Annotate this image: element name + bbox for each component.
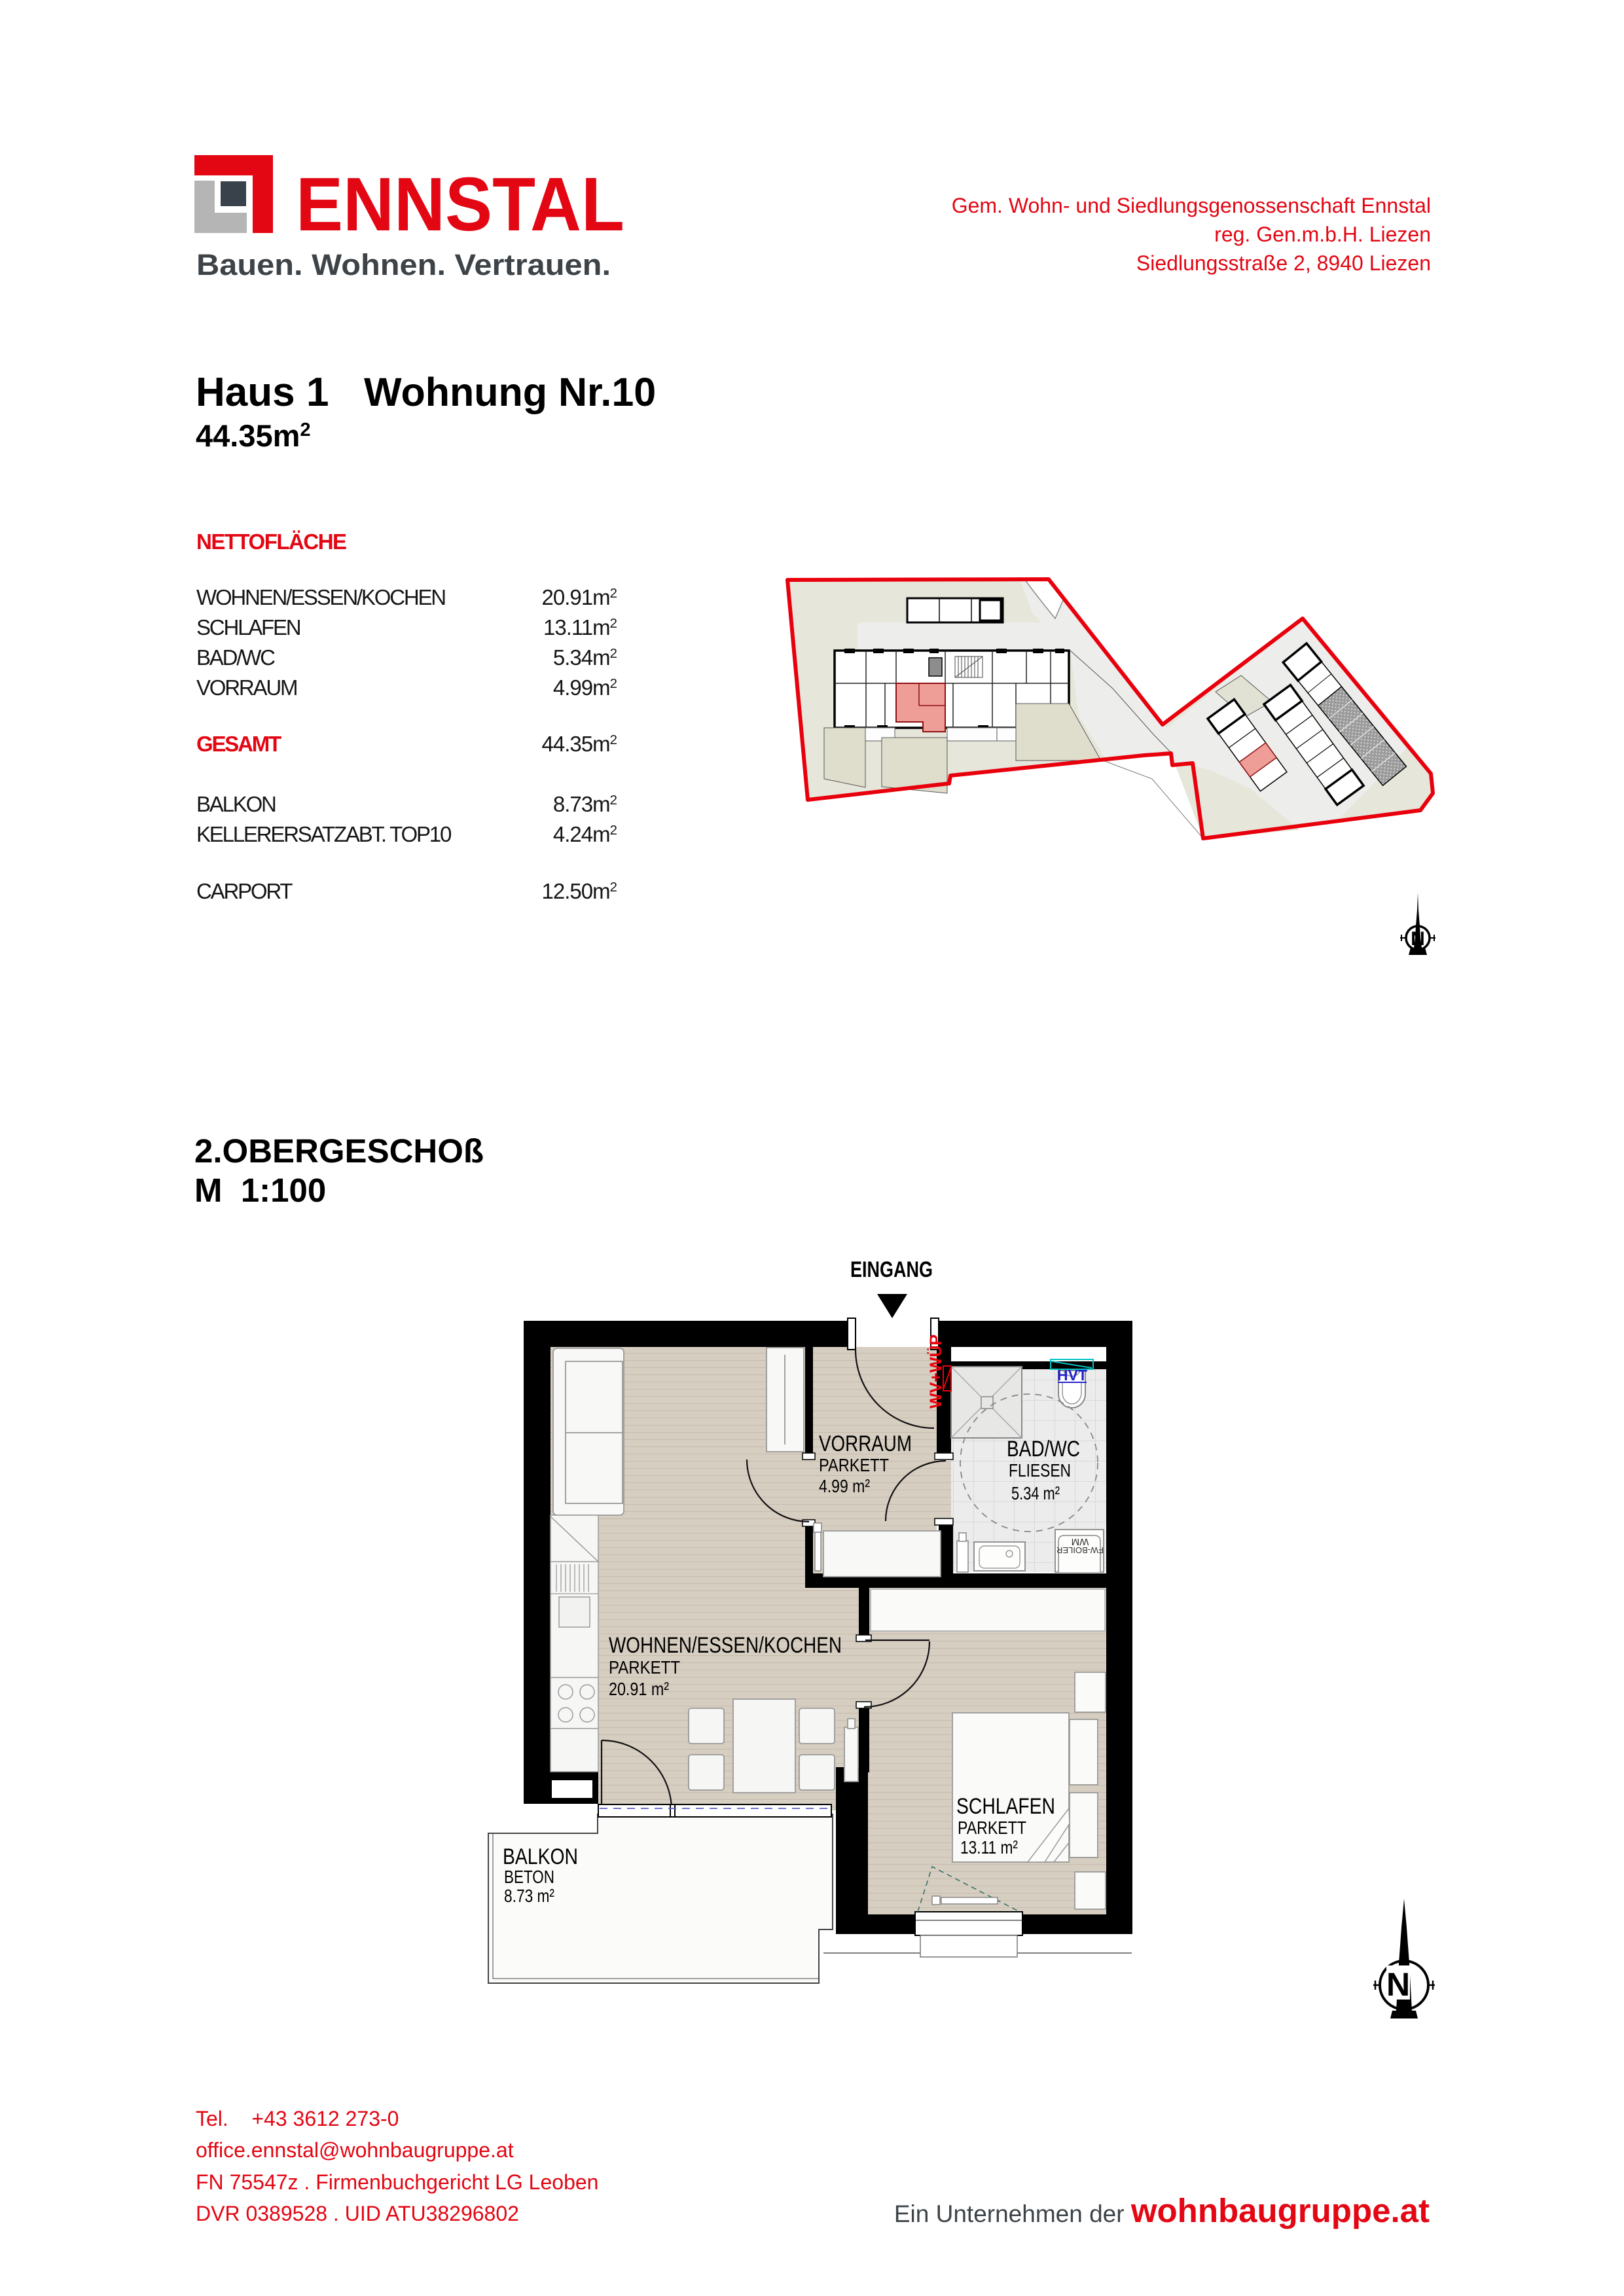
svg-text:WOHNEN/ESSEN/KOCHEN: WOHNEN/ESSEN/KOCHEN: [609, 1633, 842, 1658]
svg-text:BETON: BETON: [504, 1867, 554, 1887]
svg-text:SCHLAFEN: SCHLAFEN: [956, 1794, 1055, 1819]
svg-text:4.99 m²: 4.99 m²: [819, 1476, 870, 1496]
svg-text:BALKON: BALKON: [503, 1844, 578, 1869]
svg-text:20.91 m²: 20.91 m²: [609, 1679, 669, 1699]
svg-text:5.34 m²: 5.34 m²: [1011, 1483, 1060, 1503]
svg-text:Bauen. Wohnen. Vertrauen.: Bauen. Wohnen. Vertrauen.: [196, 248, 611, 281]
svg-text:ENNSTAL: ENNSTAL: [296, 162, 624, 242]
svg-text:PARKETT: PARKETT: [609, 1657, 680, 1677]
svg-text:FLIESEN: FLIESEN: [1009, 1460, 1071, 1480]
svg-text:VORRAUM: VORRAUM: [819, 1431, 912, 1456]
svg-text:EINGANG: EINGANG: [850, 1257, 933, 1282]
svg-text:8.73 m²: 8.73 m²: [504, 1886, 554, 1906]
svg-text:FW-BOILER: FW-BOILER: [1056, 1545, 1104, 1555]
svg-text:N: N: [1386, 1966, 1410, 2003]
svg-text:HVT: HVT: [1057, 1367, 1087, 1384]
svg-text:13.11 m²: 13.11 m²: [960, 1837, 1018, 1857]
svg-text:PARKETT: PARKETT: [819, 1455, 889, 1475]
svg-text:WV+WÜP: WV+WÜP: [926, 1335, 945, 1408]
svg-text:BAD/WC: BAD/WC: [1007, 1437, 1080, 1462]
svg-text:PARKETT: PARKETT: [958, 1818, 1026, 1838]
